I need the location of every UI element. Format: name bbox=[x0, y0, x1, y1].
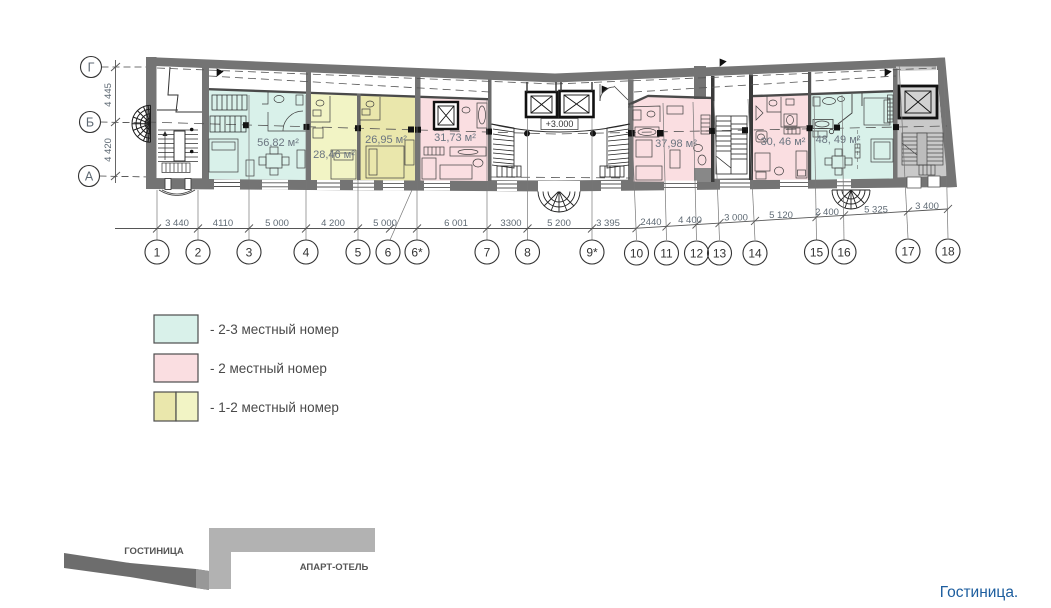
svg-text:- 2-3 местный номер: - 2-3 местный номер bbox=[210, 322, 339, 337]
svg-text:- 2 местный номер: - 2 местный номер bbox=[210, 361, 327, 376]
svg-text:12: 12 bbox=[690, 247, 704, 261]
svg-text:АПАРТ-ОТЕЛЬ: АПАРТ-ОТЕЛЬ bbox=[300, 562, 369, 573]
svg-text:16: 16 bbox=[837, 246, 851, 260]
svg-text:5 000: 5 000 bbox=[373, 218, 397, 229]
svg-text:31,73 м²: 31,73 м² bbox=[434, 132, 476, 144]
svg-text:4 445: 4 445 bbox=[103, 83, 114, 107]
svg-text:5 000: 5 000 bbox=[265, 218, 289, 229]
svg-text:Гостиница.: Гостиница. bbox=[940, 584, 1019, 601]
svg-text:- 1-2 местный номер: - 1-2 местный номер bbox=[210, 400, 339, 415]
svg-text:1: 1 bbox=[154, 246, 161, 260]
svg-text:А: А bbox=[85, 170, 94, 184]
svg-text:30, 46 м²: 30, 46 м² bbox=[761, 136, 806, 148]
svg-text:2 400: 2 400 bbox=[815, 207, 839, 218]
svg-text:2440: 2440 bbox=[640, 217, 661, 228]
svg-text:Г: Г bbox=[88, 61, 95, 75]
svg-text:10: 10 bbox=[630, 247, 644, 261]
svg-text:6 001: 6 001 bbox=[444, 218, 468, 229]
svg-text:15: 15 bbox=[810, 246, 824, 260]
svg-text:ГОСТИНИЦА: ГОСТИНИЦА bbox=[124, 546, 184, 557]
svg-text:+3.000: +3.000 bbox=[546, 119, 574, 129]
svg-text:13: 13 bbox=[713, 247, 727, 261]
svg-text:18: 18 bbox=[941, 245, 955, 259]
svg-text:6: 6 bbox=[385, 246, 392, 260]
svg-text:6*: 6* bbox=[411, 246, 423, 260]
svg-text:26,95 м²: 26,95 м² bbox=[365, 134, 407, 146]
svg-text:4 400: 4 400 bbox=[678, 215, 702, 226]
svg-text:9*: 9* bbox=[586, 246, 598, 260]
svg-text:56,82 м²: 56,82 м² bbox=[257, 137, 299, 149]
svg-text:7: 7 bbox=[484, 246, 491, 260]
svg-text:11: 11 bbox=[660, 247, 673, 261]
svg-text:Б: Б bbox=[86, 116, 94, 130]
svg-text:3 000: 3 000 bbox=[724, 213, 748, 224]
svg-text:5 120: 5 120 bbox=[769, 210, 793, 221]
svg-text:37,98 м²: 37,98 м² bbox=[655, 138, 697, 150]
svg-text:14: 14 bbox=[748, 247, 762, 261]
svg-text:4: 4 bbox=[303, 246, 310, 260]
svg-text:5: 5 bbox=[355, 246, 362, 260]
svg-text:28,46 м²: 28,46 м² bbox=[313, 149, 355, 161]
svg-text:17: 17 bbox=[901, 245, 915, 259]
svg-text:3300: 3300 bbox=[500, 218, 521, 229]
svg-text:4 420: 4 420 bbox=[103, 138, 114, 162]
svg-text:5 200: 5 200 bbox=[547, 218, 571, 229]
svg-text:4 200: 4 200 bbox=[321, 218, 345, 229]
svg-text:48, 49 м²: 48, 49 м² bbox=[816, 134, 861, 146]
svg-text:2: 2 bbox=[195, 246, 202, 260]
svg-text:5 325: 5 325 bbox=[864, 205, 888, 216]
svg-text:8: 8 bbox=[524, 246, 531, 260]
svg-text:3 440: 3 440 bbox=[165, 218, 189, 229]
svg-text:3 395: 3 395 bbox=[596, 218, 620, 229]
svg-text:4110: 4110 bbox=[213, 218, 233, 229]
svg-text:3: 3 bbox=[246, 246, 253, 260]
svg-text:3 400: 3 400 bbox=[915, 201, 939, 212]
